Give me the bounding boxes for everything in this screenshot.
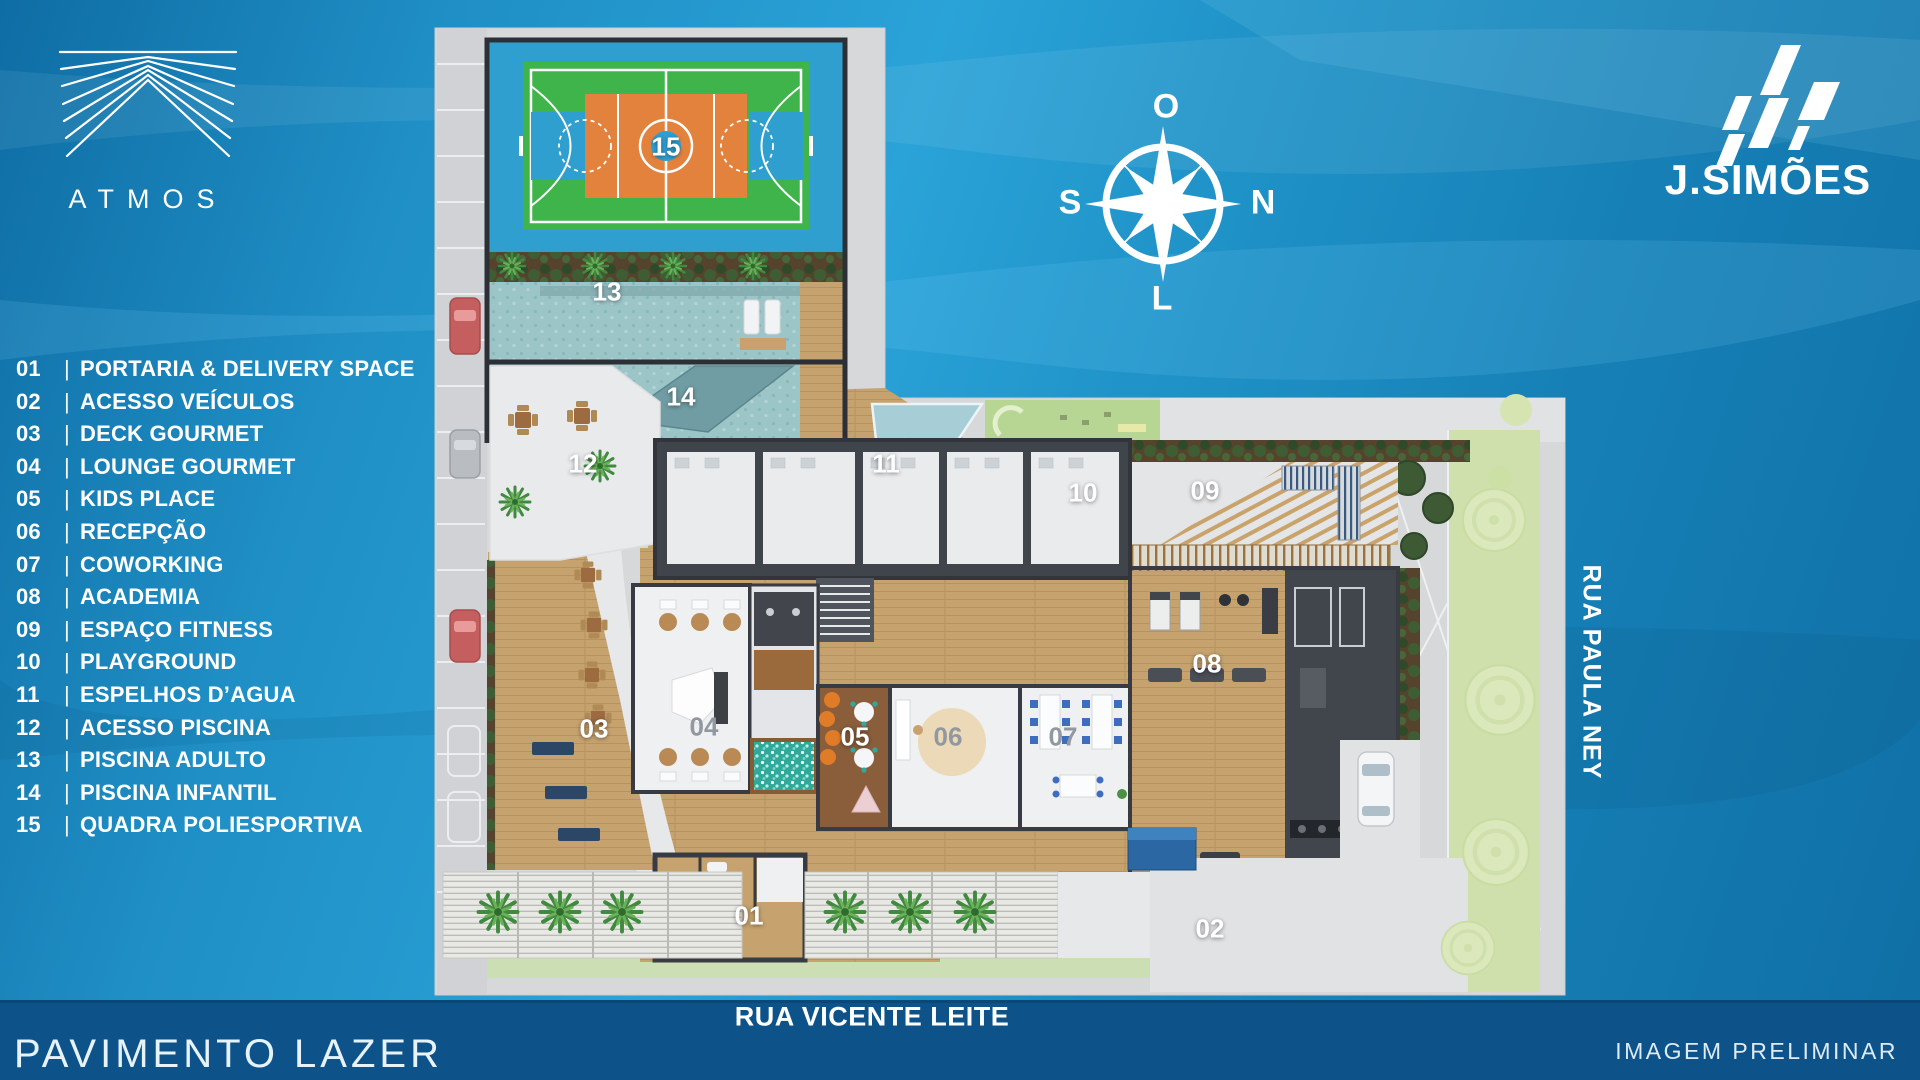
legend-item-portaria: 01|PORTARIA & DELIVERY SPACE xyxy=(16,356,415,389)
stairs xyxy=(816,578,874,642)
legend-item-deck-gourmet: 03|DECK GOURMET xyxy=(16,421,415,454)
compass-letter-east: L xyxy=(1152,280,1173,319)
parking-strip xyxy=(437,28,487,995)
legend-item-acesso-veiculos: 02|ACESSO VEÍCULOS xyxy=(16,389,415,422)
plan-label-recepcao: 06 xyxy=(934,722,963,753)
plan-label-playground: 10 xyxy=(1069,478,1098,509)
legend-item-acesso-piscina: 12|ACESSO PISCINA xyxy=(16,715,415,748)
plan-label-espaco-fitness: 09 xyxy=(1191,476,1220,507)
plan-label-lounge-gourmet: 04 xyxy=(690,712,719,743)
disclaimer-text: IMAGEM PRELIMINAR xyxy=(1615,1038,1898,1065)
zone-recepcao xyxy=(890,686,1020,829)
legend-item-kids-place: 05|KIDS PLACE xyxy=(16,486,415,519)
plan-label-coworking: 07 xyxy=(1049,722,1078,753)
plan-label-portaria: 01 xyxy=(735,901,764,932)
zone-lounge-gourmet xyxy=(633,585,750,792)
legend-item-espaco-fitness: 09|ESPAÇO FITNESS xyxy=(16,617,415,650)
street-name-bottom: RUA VICENTE LEITE xyxy=(735,1002,1010,1033)
legend-item-quadra: 15|QUADRA POLIESPORTIVA xyxy=(16,812,415,845)
legend-item-playground: 10|PLAYGROUND xyxy=(16,649,415,682)
zone-kids-place xyxy=(818,686,890,829)
compass-letter-north: N xyxy=(1251,184,1276,223)
plan-label-deck-gourmet: 03 xyxy=(580,714,609,745)
plan-label-piscina-infantil: 14 xyxy=(667,382,696,413)
ball-pit xyxy=(752,740,816,792)
legend-item-recepcao: 06|RECEPÇÃO xyxy=(16,519,415,552)
entry-canopy xyxy=(1128,828,1196,870)
car-red xyxy=(450,298,480,354)
atmos-logo-text: ATMOS xyxy=(69,184,228,215)
legend-item-academia: 08|ACADEMIA xyxy=(16,584,415,617)
zone-coworking xyxy=(1020,686,1130,829)
car-gray xyxy=(450,430,480,478)
legend-item-espelhos-dagua: 11|ESPELHOS D’AGUA xyxy=(16,682,415,715)
plan-label-academia: 08 xyxy=(1193,649,1222,680)
plan-label-espelhos-dagua: 11 xyxy=(872,449,900,480)
compass-letter-west: O xyxy=(1153,88,1179,127)
plan-label-quadra: 15 xyxy=(652,132,681,163)
plan-label-kids-place: 05 xyxy=(841,722,870,753)
page: ATMOS J.SIMÕES O N S L 01|PORTARIA & DEL… xyxy=(0,0,1920,1080)
compass-letter-south: S xyxy=(1059,184,1082,223)
legend-item-piscina-adulto: 13|PISCINA ADULTO xyxy=(16,747,415,780)
car-white xyxy=(1358,752,1394,826)
plan-label-piscina-adulto: 13 xyxy=(593,277,622,308)
amenities-legend: 01|PORTARIA & DELIVERY SPACE 02|ACESSO V… xyxy=(16,356,415,845)
legend-item-coworking: 07|COWORKING xyxy=(16,552,415,585)
kitchen-strip xyxy=(750,585,818,792)
plan-label-acesso-piscina: 12 xyxy=(569,449,598,480)
legend-item-lounge-gourmet: 04|LOUNGE GOURMET xyxy=(16,454,415,487)
jsimoes-logo-text: J.SIMÕES xyxy=(1665,156,1871,204)
legend-item-piscina-infantil: 14|PISCINA INFANTIL xyxy=(16,780,415,813)
car-red-2 xyxy=(450,610,480,662)
street-name-right: RUA PAULA NEY xyxy=(1577,565,1606,780)
plan-label-acesso-veiculos: 02 xyxy=(1196,914,1225,945)
floor-title: PAVIMENTO LAZER xyxy=(14,1032,443,1077)
